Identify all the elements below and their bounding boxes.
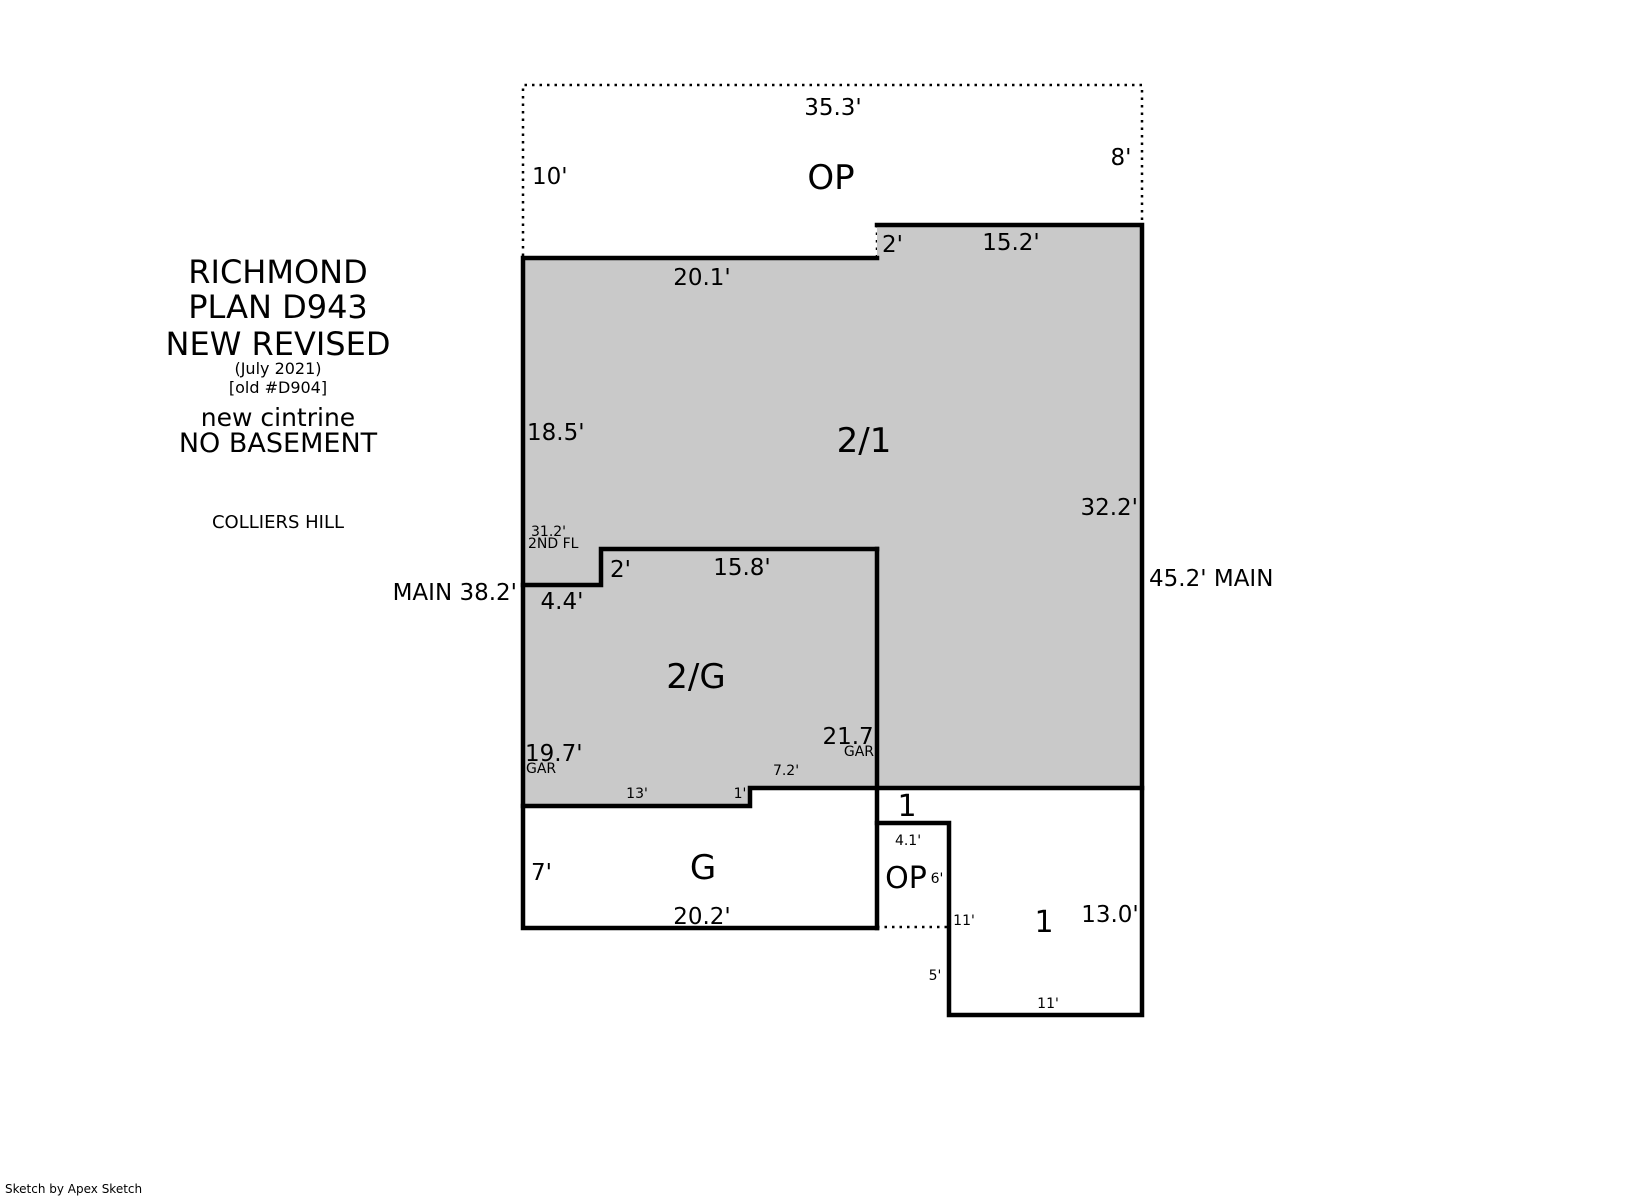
- dim-front-wall-right: 15.2': [982, 230, 1040, 256]
- title-model: RICHMOND: [188, 253, 367, 291]
- dim-room1-left-depth: 5': [929, 968, 942, 984]
- label-open-porch-bottom: OP: [885, 861, 927, 896]
- two-story-footprint: [523, 225, 1142, 806]
- dim-left-wall-main: MAIN 38.2': [393, 580, 517, 606]
- label-two-story-over-one: 2/1: [837, 421, 892, 461]
- label-one-story-strip: 1: [897, 789, 916, 824]
- dim-garage-bottom-left: 13': [626, 786, 648, 802]
- title-plan: PLAN D943: [188, 288, 368, 326]
- apex-sketch-page: RICHMOND PLAN D943 NEW REVISED (July 202…: [0, 0, 1632, 1197]
- title-revision-date: (July 2021): [234, 359, 321, 378]
- dim-right-wall-main: 45.2' MAIN: [1149, 566, 1273, 592]
- label-open-porch-top: OP: [807, 158, 854, 198]
- dim-left-wall-upper: 18.5': [527, 420, 585, 446]
- dim-garage-front-left: 7': [531, 860, 552, 886]
- dim-garage-bottom-right: 7.2': [773, 763, 799, 779]
- dim-op-right-depth: 8': [1111, 145, 1132, 171]
- label-two-story-over-garage: 2/G: [666, 657, 725, 697]
- dim-garage-bottom-step: 1': [734, 786, 747, 802]
- dim-op-bottom-right-depth: 6': [931, 871, 944, 887]
- dim-front-wall-step: 2': [882, 232, 903, 258]
- floor-plan-sketch: RICHMOND PLAN D943 NEW REVISED (July 202…: [0, 0, 1632, 1197]
- dim-op-top-width: 35.3': [804, 95, 862, 121]
- title-subdivision: COLLIERS HILL: [212, 512, 344, 533]
- sketch-credit: Sketch by Apex Sketch: [5, 1182, 142, 1196]
- dim-left-wall-2nd-fl-note: 2ND FL: [528, 536, 579, 552]
- dim-garage-right-note: GAR: [844, 744, 874, 760]
- title-old-plan: [old #D904]: [229, 378, 327, 397]
- dim-garage-step-in: 4.4': [541, 589, 584, 615]
- dim-garage-top-width: 15.8': [713, 555, 771, 581]
- dim-garage-front-width: 20.2': [673, 904, 731, 930]
- label-garage: G: [690, 848, 716, 888]
- dim-right-wall-lower: 13.0': [1081, 902, 1139, 928]
- dim-right-wall-upper: 32.2': [1080, 495, 1138, 521]
- title-revision: NEW REVISED: [166, 325, 391, 363]
- dim-op-bottom-width: 4.1': [895, 833, 921, 849]
- dim-room1-bottom-width: 11': [1037, 996, 1059, 1012]
- label-one-story-room: 1: [1034, 905, 1053, 940]
- dim-room1-width: 11': [953, 913, 975, 929]
- title-note-2: NO BASEMENT: [179, 428, 378, 459]
- dim-front-wall-left: 20.1': [673, 265, 731, 291]
- dim-garage-step-up: 2': [610, 557, 631, 583]
- dim-garage-left-note: GAR: [526, 761, 556, 777]
- dim-op-left-depth: 10': [532, 164, 568, 190]
